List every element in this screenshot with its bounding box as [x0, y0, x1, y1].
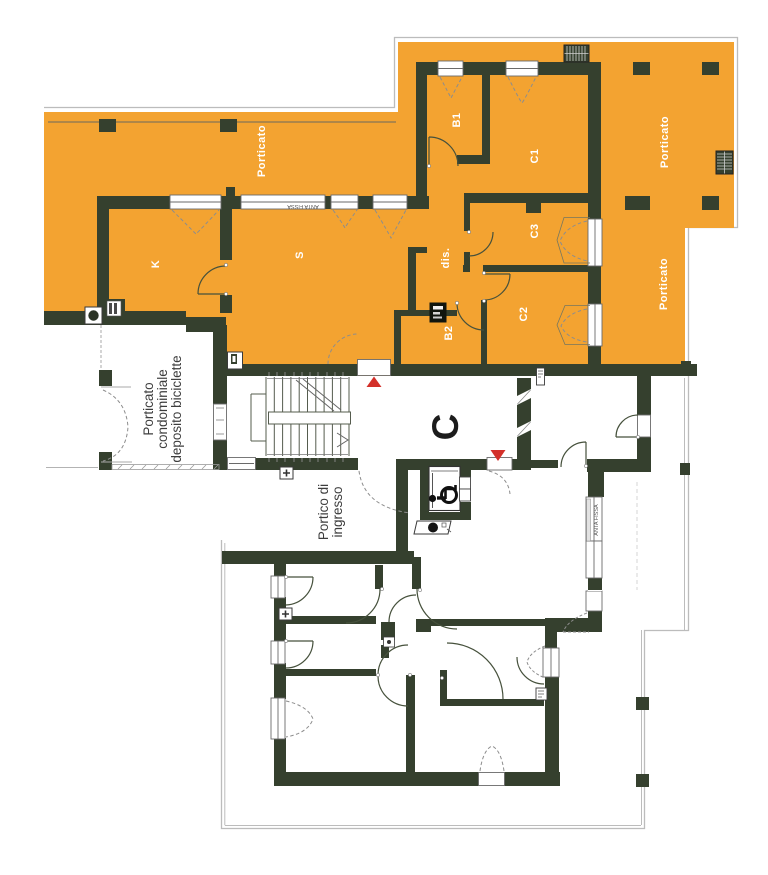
svg-text:C: C — [425, 414, 466, 441]
svg-text:Porticato: Porticato — [256, 125, 268, 177]
svg-text:Porticato: Porticato — [141, 382, 156, 435]
svg-text:condominiale: condominiale — [155, 369, 170, 449]
svg-text:S: S — [294, 251, 306, 259]
svg-text:C1: C1 — [529, 148, 541, 163]
svg-text:C2: C2 — [518, 306, 530, 321]
svg-text:Portico di: Portico di — [316, 484, 331, 540]
svg-text:B1: B1 — [451, 112, 463, 127]
svg-text:dis.: dis. — [440, 248, 452, 269]
svg-text:ANTA FISSA: ANTA FISSA — [594, 504, 600, 536]
svg-text:K: K — [150, 260, 162, 268]
svg-text:ingresso: ingresso — [330, 486, 345, 537]
svg-text:Porticato: Porticato — [659, 116, 671, 168]
svg-text:Porticato: Porticato — [658, 258, 670, 310]
svg-text:B2: B2 — [443, 325, 455, 340]
svg-text:C3: C3 — [529, 223, 541, 238]
svg-text:deposito biciclette: deposito biciclette — [169, 355, 184, 462]
svg-text:ANTA FISSA: ANTA FISSA — [287, 203, 319, 209]
